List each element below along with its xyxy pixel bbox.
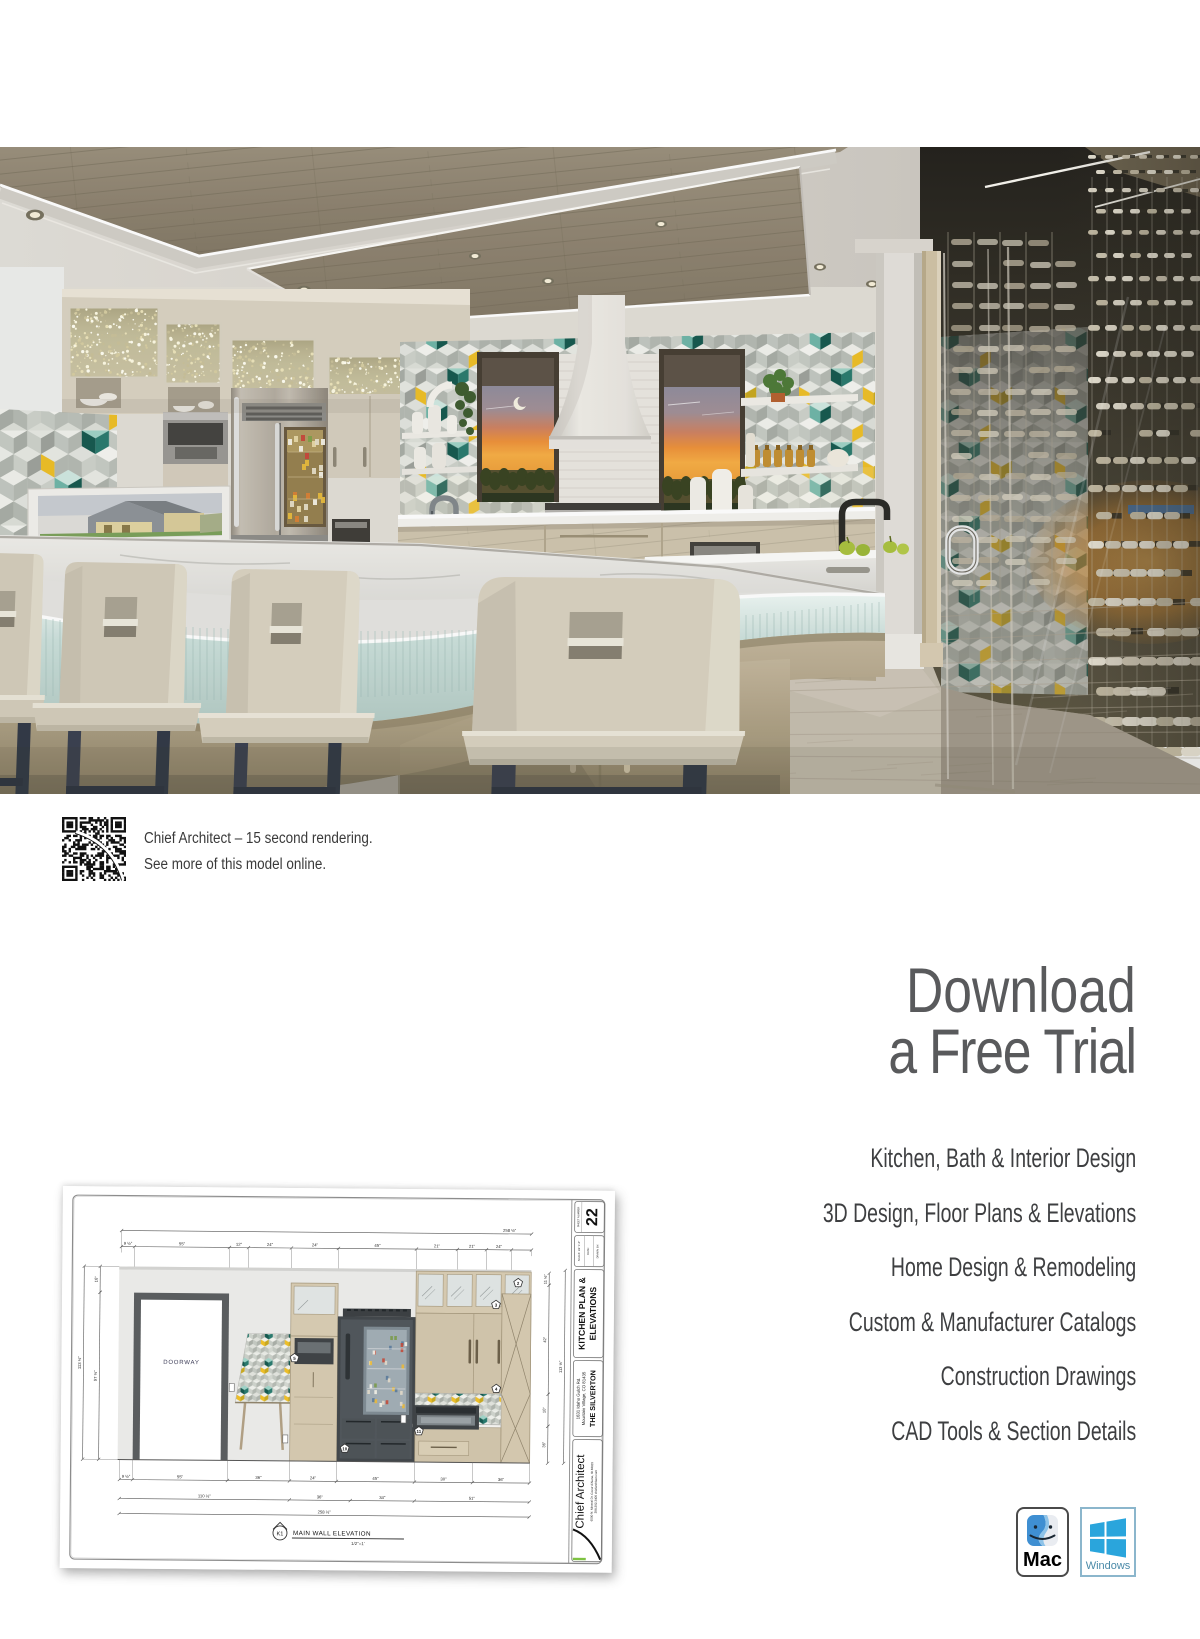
svg-text:51": 51" bbox=[469, 1496, 476, 1501]
svg-text:22: 22 bbox=[584, 1208, 601, 1226]
svg-text:1/2"=1': 1/2"=1' bbox=[351, 1541, 365, 1546]
svg-text:21": 21" bbox=[469, 1244, 476, 1249]
svg-text:Mac: Mac bbox=[1023, 1549, 1062, 1571]
svg-text:97 ½": 97 ½" bbox=[93, 1370, 98, 1381]
svg-text:24": 24" bbox=[312, 1242, 319, 1247]
svg-text:45": 45" bbox=[372, 1476, 379, 1481]
svg-text:DOORWAY: DOORWAY bbox=[163, 1360, 200, 1366]
svg-text:THE SILVERTON: THE SILVERTON bbox=[588, 1370, 597, 1427]
svg-text:DRAWN BY:: DRAWN BY: bbox=[595, 1244, 599, 1259]
svg-text:10": 10" bbox=[542, 1407, 547, 1413]
svg-text:36": 36" bbox=[498, 1477, 505, 1482]
svg-text:12": 12" bbox=[236, 1242, 243, 1247]
svg-text:1631 Idaho Gulch Rd.: 1631 Idaho Gulch Rd. bbox=[575, 1378, 580, 1420]
svg-text:SCALE: 1/4" 1'-0": SCALE: 1/4" 1'-0" bbox=[577, 1241, 581, 1261]
svg-text:34": 34" bbox=[379, 1495, 386, 1500]
svg-text:258 ½": 258 ½" bbox=[318, 1509, 332, 1514]
svg-text:DATE:: DATE: bbox=[586, 1247, 590, 1255]
svg-text:K1: K1 bbox=[277, 1531, 284, 1537]
svg-text:36": 36" bbox=[541, 1441, 546, 1447]
svg-text:208.292.3400 chiefarchitec: 208.292.3400 chiefarchitect.com bbox=[594, 1469, 598, 1513]
svg-text:36": 36" bbox=[317, 1494, 324, 1499]
svg-text:Windows: Windows bbox=[1086, 1560, 1131, 1572]
svg-text:MAIN WALL ELEVATION: MAIN WALL ELEVATION bbox=[293, 1530, 371, 1538]
svg-text:Chief Architect: Chief Architect bbox=[575, 1454, 588, 1529]
svg-text:42": 42" bbox=[542, 1336, 547, 1342]
svg-text:30": 30" bbox=[440, 1477, 447, 1482]
svg-text:11: 11 bbox=[417, 1429, 422, 1434]
svg-text:9 ½": 9 ½" bbox=[122, 1474, 131, 1479]
svg-text:KITCHEN PLAN &: KITCHEN PLAN & bbox=[577, 1277, 588, 1350]
svg-text:113 ½": 113 ½" bbox=[558, 1360, 563, 1373]
svg-text:11 ½": 11 ½" bbox=[543, 1274, 548, 1285]
svg-text:36": 36" bbox=[255, 1475, 262, 1480]
svg-text:258 ½": 258 ½" bbox=[503, 1228, 517, 1233]
svg-text:16": 16" bbox=[94, 1276, 99, 1283]
svg-text:55": 55" bbox=[177, 1474, 184, 1479]
svg-text:110 ½": 110 ½" bbox=[198, 1493, 211, 1498]
svg-text:9 ½": 9 ½" bbox=[124, 1241, 133, 1246]
svg-text:ELEVATIONS: ELEVATIONS bbox=[588, 1287, 598, 1341]
svg-text:Mountain Village, CO 81435: Mountain Village, CO 81435 bbox=[581, 1371, 586, 1425]
svg-text:24": 24" bbox=[496, 1244, 503, 1249]
svg-text:45": 45" bbox=[374, 1243, 381, 1248]
svg-text:113 ½": 113 ½" bbox=[77, 1356, 82, 1369]
svg-text:21": 21" bbox=[434, 1243, 441, 1248]
svg-text:10: 10 bbox=[342, 1446, 347, 1451]
svg-text:SHEET NUMBER: SHEET NUMBER bbox=[576, 1207, 580, 1228]
svg-text:24": 24" bbox=[310, 1475, 317, 1480]
svg-text:55": 55" bbox=[179, 1241, 186, 1246]
svg-text:24": 24" bbox=[267, 1242, 274, 1247]
